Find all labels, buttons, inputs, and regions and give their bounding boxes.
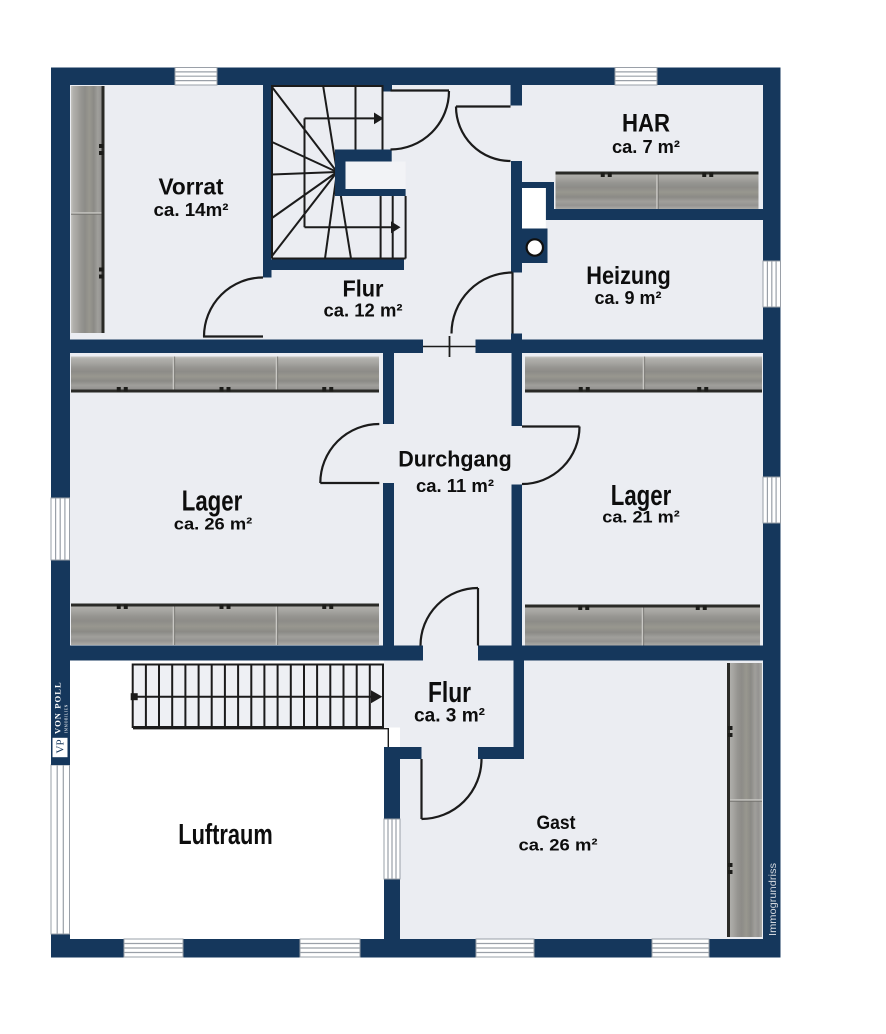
svg-text:Immogrundriss: Immogrundriss (767, 863, 779, 936)
svg-text:ca. 14m²: ca. 14m² (154, 200, 229, 220)
svg-text:Flur: Flur (428, 677, 471, 709)
svg-text:ca. 26 m²: ca. 26 m² (519, 837, 599, 855)
svg-text:VON POLL: VON POLL (53, 681, 63, 734)
svg-text:Luftraum: Luftraum (178, 819, 273, 851)
svg-text:VP: VP (55, 739, 67, 753)
svg-text:IMMOBILIEN: IMMOBILIEN (65, 704, 69, 733)
svg-text:ca. 9 m²: ca. 9 m² (595, 288, 662, 308)
svg-text:ca. 7 m²: ca. 7 m² (612, 137, 680, 157)
svg-text:Durchgang: Durchgang (398, 447, 512, 472)
svg-text:ca. 3 m²: ca. 3 m² (414, 706, 485, 727)
svg-text:HAR: HAR (622, 110, 670, 138)
svg-text:Flur: Flur (343, 276, 384, 302)
svg-text:ca. 21 m²: ca. 21 m² (602, 508, 680, 527)
svg-text:Gast: Gast (537, 812, 576, 834)
svg-text:ca. 12 m²: ca. 12 m² (324, 301, 403, 321)
svg-text:Heizung: Heizung (586, 262, 671, 290)
svg-text:Lager: Lager (182, 486, 243, 518)
svg-text:ca. 11 m²: ca. 11 m² (416, 476, 494, 496)
svg-text:ca. 26 m²: ca. 26 m² (174, 515, 253, 534)
svg-text:Vorrat: Vorrat (159, 174, 224, 200)
